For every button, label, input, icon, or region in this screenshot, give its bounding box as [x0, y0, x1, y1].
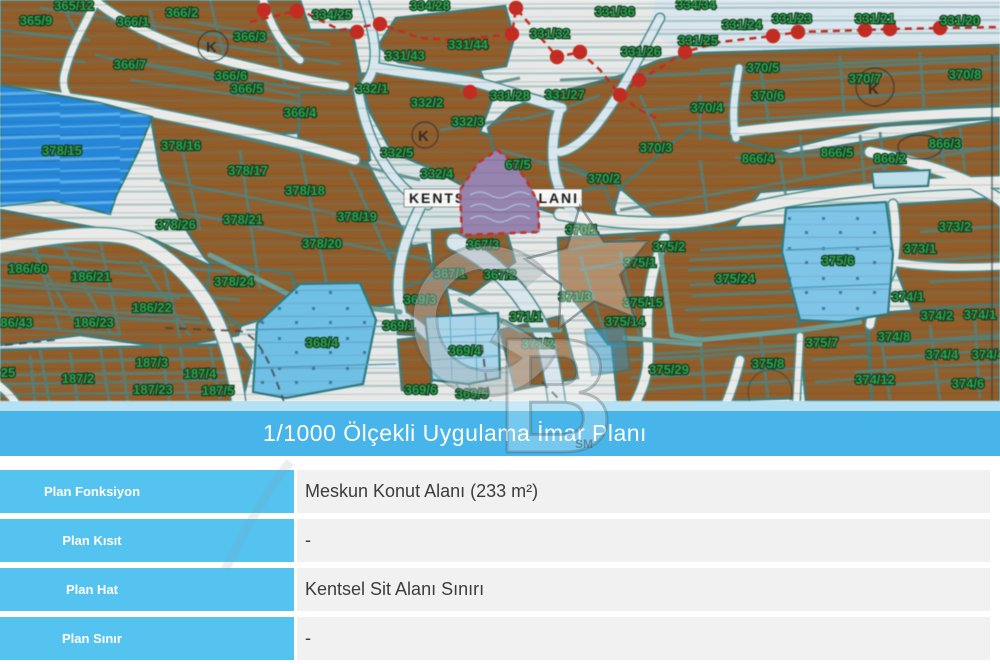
svg-text:366/5: 366/5 — [231, 81, 264, 96]
svg-text:186/23: 186/23 — [74, 315, 114, 330]
svg-text:374/6: 374/6 — [952, 376, 985, 391]
svg-text:375/6: 375/6 — [822, 253, 855, 268]
svg-text:374/4: 374/4 — [926, 347, 959, 362]
svg-text:378/24: 378/24 — [214, 274, 255, 289]
svg-text:375/8: 375/8 — [752, 356, 785, 371]
svg-text:367/3: 367/3 — [467, 237, 500, 252]
svg-text:367/2: 367/2 — [484, 267, 517, 282]
svg-text:368/4: 368/4 — [306, 335, 339, 350]
svg-text:331/36: 331/36 — [595, 4, 635, 19]
svg-text:365/12: 365/12 — [54, 0, 94, 13]
svg-text:373/1: 373/1 — [904, 241, 937, 256]
svg-text:331/23: 331/23 — [772, 11, 812, 26]
svg-text:332/4: 332/4 — [421, 166, 454, 181]
svg-text:187/5: 187/5 — [202, 383, 235, 398]
svg-text:331/20: 331/20 — [940, 13, 980, 28]
svg-text:375/15: 375/15 — [623, 295, 663, 310]
svg-text:365/9: 365/9 — [20, 13, 53, 28]
svg-text:371/2: 371/2 — [522, 336, 555, 351]
svg-text:369/6: 369/6 — [405, 382, 438, 397]
svg-text:866/5: 866/5 — [821, 145, 854, 160]
svg-text:378/15: 378/15 — [42, 143, 82, 158]
svg-text:378/16: 378/16 — [161, 138, 201, 153]
svg-text:378/20: 378/20 — [302, 236, 342, 251]
svg-text:332/1: 332/1 — [356, 81, 389, 96]
svg-text:366/1: 366/1 — [117, 14, 150, 29]
svg-text:187/4: 187/4 — [184, 366, 217, 381]
svg-text:331/44: 331/44 — [448, 37, 489, 52]
svg-text:370/3: 370/3 — [640, 140, 673, 155]
svg-text:375/29: 375/29 — [649, 362, 689, 377]
svg-text:375/2: 375/2 — [653, 239, 686, 254]
svg-text:371/1: 371/1 — [510, 309, 543, 324]
svg-text:866/3: 866/3 — [929, 136, 962, 151]
svg-text:370/5: 370/5 — [747, 60, 780, 75]
svg-text:367/1: 367/1 — [434, 266, 467, 281]
svg-text:369/5: 369/5 — [456, 386, 489, 401]
svg-text:331/24: 331/24 — [722, 17, 763, 32]
svg-text:378/17: 378/17 — [228, 163, 268, 178]
svg-text:374/1: 374/1 — [892, 289, 925, 304]
svg-text:370/6: 370/6 — [752, 88, 785, 103]
svg-text:334/28: 334/28 — [410, 0, 450, 13]
svg-text:370/4: 370/4 — [691, 100, 724, 115]
svg-text:375/7: 375/7 — [806, 335, 839, 350]
svg-text:186/22: 186/22 — [132, 300, 172, 315]
svg-text:378/21: 378/21 — [223, 212, 263, 227]
svg-text:332/2: 332/2 — [411, 95, 444, 110]
svg-text:187/23: 187/23 — [133, 382, 173, 397]
svg-text:375/14: 375/14 — [605, 314, 646, 329]
svg-text:374/12: 374/12 — [855, 372, 895, 387]
svg-text:370/1: 370/1 — [566, 222, 599, 237]
svg-text:370/7: 370/7 — [849, 71, 882, 86]
svg-text:378/26: 378/26 — [156, 217, 196, 232]
svg-text:67/5: 67/5 — [505, 157, 530, 172]
svg-text:331/21: 331/21 — [855, 11, 895, 26]
svg-text:374/1: 374/1 — [964, 307, 997, 322]
svg-text:374/8: 374/8 — [878, 329, 911, 344]
svg-text:332/5: 332/5 — [381, 145, 414, 160]
svg-text:369/1: 369/1 — [383, 318, 416, 333]
svg-text:331/27: 331/27 — [545, 87, 585, 102]
svg-text:375/1: 375/1 — [624, 255, 657, 270]
svg-text:366/3: 366/3 — [234, 29, 267, 44]
svg-text:378/18: 378/18 — [285, 183, 325, 198]
svg-text:25: 25 — [1, 365, 15, 380]
svg-text:187/3: 187/3 — [136, 355, 169, 370]
svg-text:369/3: 369/3 — [404, 292, 437, 307]
svg-text:366/2: 366/2 — [166, 5, 199, 20]
svg-text:370/8: 370/8 — [949, 67, 982, 82]
svg-text:370/2: 370/2 — [588, 171, 621, 186]
svg-text:186/21: 186/21 — [71, 269, 111, 284]
svg-text:866/4: 866/4 — [742, 151, 775, 166]
svg-text:374/4: 374/4 — [972, 347, 1000, 362]
svg-text:334/25: 334/25 — [312, 7, 352, 22]
svg-text:369/4: 369/4 — [449, 343, 482, 358]
svg-text:331/28: 331/28 — [490, 88, 530, 103]
svg-text:187/2: 187/2 — [62, 371, 95, 386]
svg-text:332/3: 332/3 — [452, 114, 485, 129]
svg-text:375/24: 375/24 — [715, 271, 756, 286]
svg-text:366/7: 366/7 — [114, 57, 147, 72]
svg-text:371/3: 371/3 — [559, 289, 592, 304]
svg-text:334/34: 334/34 — [676, 0, 717, 12]
svg-text:331/32: 331/32 — [530, 26, 570, 41]
svg-text:331/25: 331/25 — [678, 33, 718, 48]
svg-text:K: K — [206, 39, 217, 56]
svg-text:374/2: 374/2 — [921, 308, 954, 323]
svg-text:331/26: 331/26 — [621, 44, 661, 59]
svg-text:K: K — [418, 128, 429, 145]
svg-text:366/4: 366/4 — [284, 105, 317, 120]
svg-text:373/2: 373/2 — [939, 219, 972, 234]
svg-text:866/2: 866/2 — [874, 151, 907, 166]
svg-text:186/60: 186/60 — [8, 261, 48, 276]
svg-text:186/43: 186/43 — [0, 315, 33, 330]
svg-text:331/43: 331/43 — [385, 48, 425, 63]
svg-text:378/19: 378/19 — [337, 209, 377, 224]
